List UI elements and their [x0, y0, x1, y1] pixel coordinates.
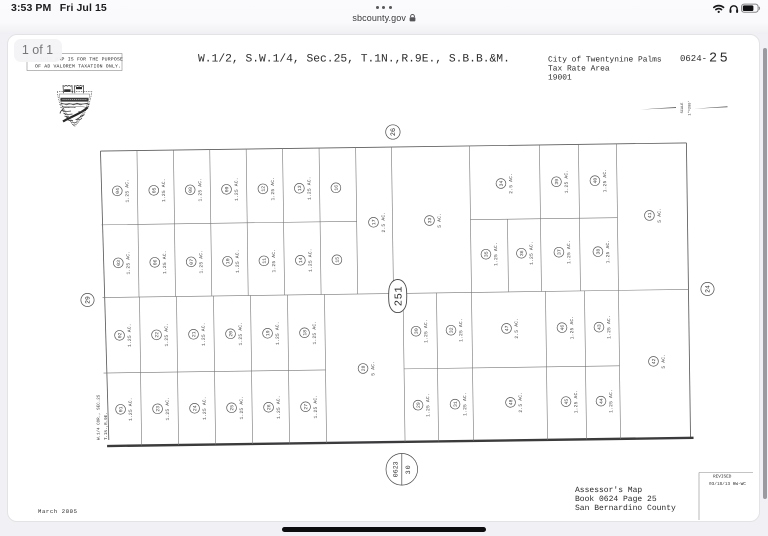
svg-text:31: 31 — [453, 401, 459, 407]
svg-text:1.25 AC.: 1.25 AC. — [127, 323, 133, 347]
svg-text:1.25 AC.: 1.25 AC. — [271, 249, 277, 273]
svg-text:1.25 AC.: 1.25 AC. — [425, 393, 431, 417]
svg-text:1.25 AC.: 1.25 AC. — [312, 321, 318, 345]
svg-text:0624-: 0624- — [680, 54, 707, 64]
svg-text:1.25 AC.: 1.25 AC. — [528, 241, 534, 265]
svg-text:1.25 AC.: 1.25 AC. — [602, 169, 608, 193]
svg-text:5 AC.: 5 AC. — [370, 361, 376, 376]
svg-text:36: 36 — [519, 250, 525, 256]
svg-text:W.1/2, S.W.1/4, Sec.25, T.1N.,: W.1/2, S.W.1/4, Sec.25, T.1N.,R.9E., S.B… — [198, 53, 510, 66]
svg-text:11: 11 — [262, 258, 268, 264]
svg-text:45: 45 — [564, 399, 570, 405]
svg-text:05: 05 — [151, 187, 157, 193]
svg-text:29: 29 — [85, 296, 92, 304]
svg-text:W.1/4 COR., SEC.25: W.1/4 COR., SEC.25 — [96, 394, 102, 440]
svg-text:1.25 AC.: 1.25 AC. — [569, 316, 575, 340]
svg-text:39: 39 — [554, 179, 560, 185]
svg-text:2.5 AC.: 2.5 AC. — [518, 392, 524, 413]
svg-text:Tax Rate Area: Tax Rate Area — [548, 65, 610, 74]
svg-text:1.25 AC.: 1.25 AC. — [563, 170, 569, 194]
svg-text:5 AC.: 5 AC. — [661, 354, 667, 369]
svg-text:1.25 AC.: 1.25 AC. — [458, 318, 464, 342]
svg-text:2.5 AC.: 2.5 AC. — [508, 173, 514, 194]
svg-text:44: 44 — [599, 398, 605, 404]
svg-text:13: 13 — [297, 185, 303, 191]
svg-text:1.25 AC.: 1.25 AC. — [161, 178, 167, 202]
svg-text:5 AC.: 5 AC. — [437, 213, 443, 228]
svg-text:29: 29 — [416, 402, 422, 408]
svg-text:1.25 AC.: 1.25 AC. — [275, 321, 281, 345]
svg-text:22: 22 — [154, 332, 160, 338]
svg-text:1.25 AC.: 1.25 AC. — [239, 396, 245, 420]
svg-text:14: 14 — [298, 257, 304, 263]
svg-text:1.25 AC.: 1.25 AC. — [234, 177, 240, 201]
svg-text:01: 01 — [118, 406, 124, 412]
svg-text:28: 28 — [361, 365, 367, 371]
svg-text:1.25 AC.: 1.25 AC. — [306, 176, 312, 200]
svg-text:251: 251 — [394, 286, 406, 306]
svg-text:City of Twentynine Palms: City of Twentynine Palms — [548, 56, 662, 65]
svg-text:1.25 AC.: 1.25 AC. — [493, 242, 499, 266]
svg-text:32: 32 — [449, 327, 455, 333]
svg-text:1.25 AC.: 1.25 AC. — [605, 240, 611, 264]
svg-text:1.25 AC.: 1.25 AC. — [201, 322, 207, 346]
svg-text:35: 35 — [484, 251, 490, 257]
svg-text:08: 08 — [188, 187, 194, 193]
svg-text:26: 26 — [266, 404, 272, 410]
svg-text:18: 18 — [302, 330, 308, 336]
svg-text:23: 23 — [155, 406, 161, 412]
svg-text:15: 15 — [335, 257, 341, 263]
svg-text:OF AD VALOREM TAXATION ONLY.: OF AD VALOREM TAXATION ONLY. — [35, 63, 121, 69]
svg-text:0623: 0623 — [393, 461, 400, 477]
svg-text:19: 19 — [265, 330, 271, 336]
svg-text:1.25 AC.: 1.25 AC. — [573, 390, 579, 414]
svg-text:06: 06 — [152, 259, 158, 265]
svg-text:1.25 AC.: 1.25 AC. — [313, 395, 319, 419]
svg-text:25: 25 — [709, 52, 730, 67]
svg-text:1.25 AC.: 1.25 AC. — [164, 323, 170, 347]
svg-text:46: 46 — [560, 325, 566, 331]
svg-text:48: 48 — [508, 399, 514, 405]
svg-text:SCALE: SCALE — [680, 103, 685, 114]
svg-text:33: 33 — [427, 217, 433, 223]
svg-text:38: 38 — [596, 249, 602, 255]
svg-text:26: 26 — [390, 128, 398, 136]
svg-text:1.25 AC.: 1.25 AC. — [307, 248, 313, 272]
svg-text:San Bernardino County: San Bernardino County — [575, 504, 676, 513]
svg-text:1.25 AC.: 1.25 AC. — [238, 322, 244, 346]
svg-text:25: 25 — [229, 405, 235, 411]
svg-text:37: 37 — [557, 249, 563, 255]
svg-text:2.5 AC.: 2.5 AC. — [514, 318, 520, 339]
svg-text:03: 03 — [116, 260, 122, 266]
svg-text:30: 30 — [405, 464, 412, 474]
svg-text:21: 21 — [191, 331, 197, 337]
svg-text:1.25 AC.: 1.25 AC. — [235, 249, 241, 273]
svg-text:17: 17 — [371, 219, 377, 225]
svg-text:07: 07 — [189, 259, 195, 265]
svg-text:27: 27 — [303, 404, 309, 410]
svg-text:March 2005: March 2005 — [38, 508, 78, 515]
svg-text:1.25 AC.: 1.25 AC. — [197, 178, 203, 202]
svg-text:02: 02 — [117, 332, 123, 338]
svg-text:1.25 AC.: 1.25 AC. — [462, 392, 468, 416]
svg-text:2.5 AC.: 2.5 AC. — [381, 212, 387, 233]
svg-text:30: 30 — [414, 328, 420, 334]
svg-text:24: 24 — [192, 405, 198, 411]
svg-text:42: 42 — [651, 358, 657, 364]
svg-text:24: 24 — [705, 285, 712, 293]
svg-text:34: 34 — [499, 180, 505, 186]
svg-text:40: 40 — [593, 178, 599, 184]
svg-text:12: 12 — [261, 186, 267, 192]
svg-text:47: 47 — [504, 325, 510, 331]
svg-text:1.25 AC.: 1.25 AC. — [124, 179, 130, 203]
svg-text:1.25 AC.: 1.25 AC. — [162, 250, 168, 274]
svg-text:41: 41 — [647, 212, 653, 218]
svg-text:03/18/13 RW-WC: 03/18/13 RW-WC — [709, 481, 746, 487]
svg-text:20: 20 — [228, 331, 234, 337]
svg-text:1.25 AC.: 1.25 AC. — [165, 397, 171, 421]
svg-text:Book 0624 Page 25: Book 0624 Page 25 — [575, 495, 657, 504]
svg-text:10: 10 — [225, 258, 231, 264]
svg-text:REVISED: REVISED — [713, 475, 732, 480]
svg-text:43: 43 — [597, 324, 603, 330]
svg-text:1.25 AC.: 1.25 AC. — [198, 250, 204, 274]
svg-text:1.25 AC.: 1.25 AC. — [125, 251, 131, 275]
svg-text:1.25 AC.: 1.25 AC. — [270, 177, 276, 201]
svg-text:1.25 AC.: 1.25 AC. — [202, 396, 208, 420]
svg-text:1.25 AC.: 1.25 AC. — [566, 240, 572, 264]
svg-text:1"=200': 1"=200' — [688, 100, 693, 115]
svg-text:1.25 AC.: 1.25 AC. — [606, 315, 612, 339]
svg-text:1.25 AC.: 1.25 AC. — [608, 389, 614, 413]
svg-text:09: 09 — [224, 186, 230, 192]
svg-text:1.25 AC.: 1.25 AC. — [276, 395, 282, 419]
svg-text:1.25 AC.: 1.25 AC. — [423, 319, 429, 343]
svg-text:16: 16 — [334, 185, 340, 191]
svg-text:Assessor's Map: Assessor's Map — [575, 486, 642, 495]
svg-text:5 AC.: 5 AC. — [657, 208, 663, 223]
svg-text:1.25 AC.: 1.25 AC. — [128, 397, 134, 421]
svg-text:T.1N.,R.9E.: T.1N.,R.9E. — [104, 412, 109, 440]
svg-text:19001: 19001 — [548, 74, 572, 83]
svg-text:04: 04 — [115, 188, 121, 194]
